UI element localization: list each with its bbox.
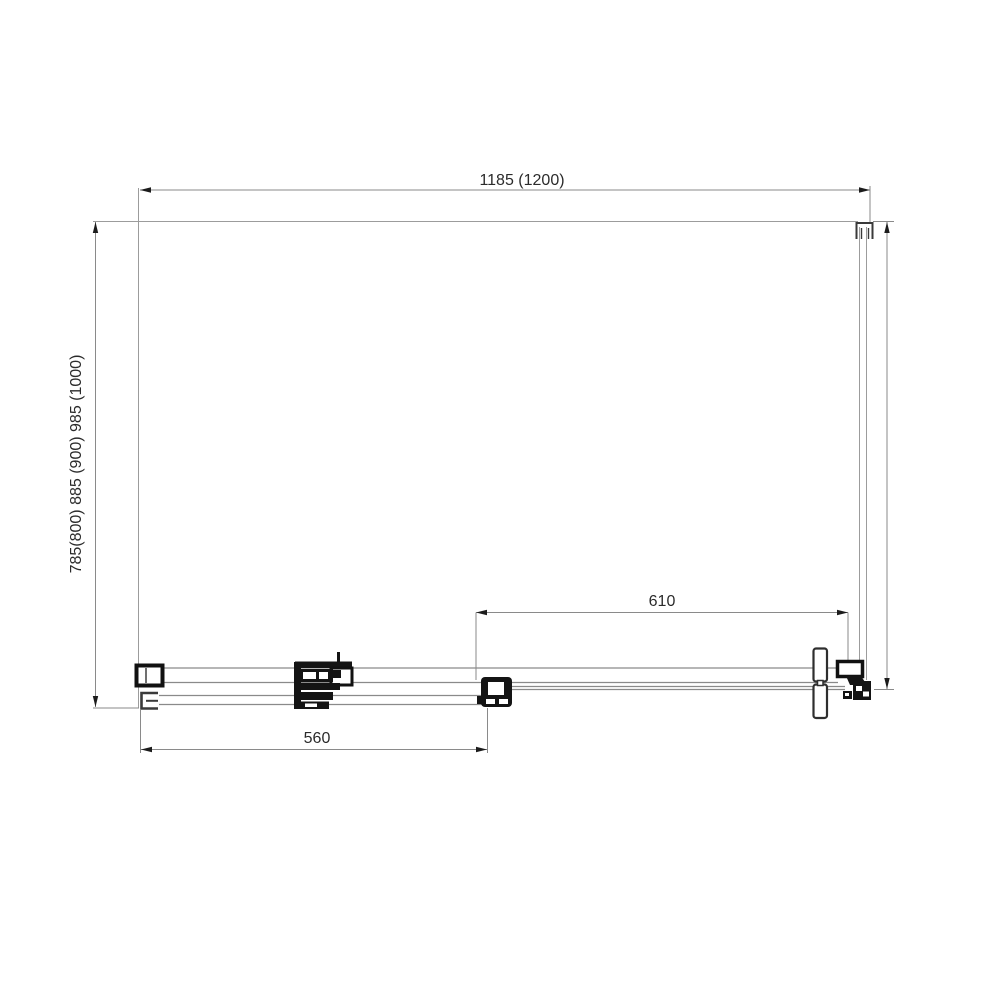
arrow-down xyxy=(93,696,98,707)
corner-bracket-notch xyxy=(856,686,862,691)
carriage-bottom-slot xyxy=(305,704,317,708)
dimension-width: 1185 (1200) xyxy=(140,172,870,222)
dimension-opening-label: 610 xyxy=(649,593,676,610)
arrow-down xyxy=(884,678,889,689)
dimension-door: 560 xyxy=(141,708,488,753)
shower-enclosure-diagram: 1185 (1200) 785(800) 885 (900) 985 (1000… xyxy=(0,0,1000,1000)
dimension-width-label: 1185 (1200) xyxy=(479,172,564,189)
handle-standoff-bottom xyxy=(814,685,828,719)
corner-profile-block xyxy=(838,662,863,677)
arrow-right xyxy=(859,187,870,192)
door-handle xyxy=(814,649,828,719)
fixed-panel xyxy=(512,687,845,690)
arrow-up xyxy=(93,222,98,233)
guide-block-window xyxy=(488,682,504,695)
dimension-depth-right xyxy=(873,222,894,690)
arrow-left xyxy=(476,610,487,615)
dimension-opening: 610 xyxy=(476,593,848,680)
roller-pin xyxy=(337,652,340,663)
dimension-depth-label: 785(800) 885 (900) 985 (1000) xyxy=(68,355,85,574)
arrow-left xyxy=(140,187,151,192)
handle-standoff-top xyxy=(814,649,828,682)
corner-bracket-notch xyxy=(863,692,869,697)
corner-bracket-foot-notch xyxy=(845,693,849,696)
guide-block-lug xyxy=(477,696,482,704)
corner-bracket-assembly xyxy=(838,662,872,701)
carriage-window xyxy=(319,672,328,679)
left-wall-bracket xyxy=(137,666,163,686)
wall-profile-block xyxy=(137,666,163,686)
return-panel xyxy=(857,223,873,680)
carriage-mid-bar xyxy=(294,683,340,690)
arrow-up xyxy=(884,222,889,233)
top-channel-bracket xyxy=(857,223,873,239)
arrow-right xyxy=(837,610,848,615)
dimension-depth-left: 785(800) 885 (900) 985 (1000) xyxy=(68,222,139,708)
handle-neck xyxy=(818,681,824,686)
left-door-bracket xyxy=(142,693,159,709)
roller-carriage xyxy=(294,652,352,709)
dimension-door-label: 560 xyxy=(304,730,331,747)
guide-block-foot xyxy=(486,699,495,704)
guide-block xyxy=(477,677,512,707)
technical-drawing-page: 1185 (1200) 785(800) 885 (900) 985 (1000… xyxy=(0,0,1000,1000)
arrow-left xyxy=(141,747,152,752)
carriage-window xyxy=(303,672,316,679)
guide-block-foot xyxy=(499,699,508,704)
roller-bracket-tab xyxy=(333,670,341,678)
carriage-lower-bar xyxy=(294,692,333,700)
arrow-right xyxy=(476,747,487,752)
